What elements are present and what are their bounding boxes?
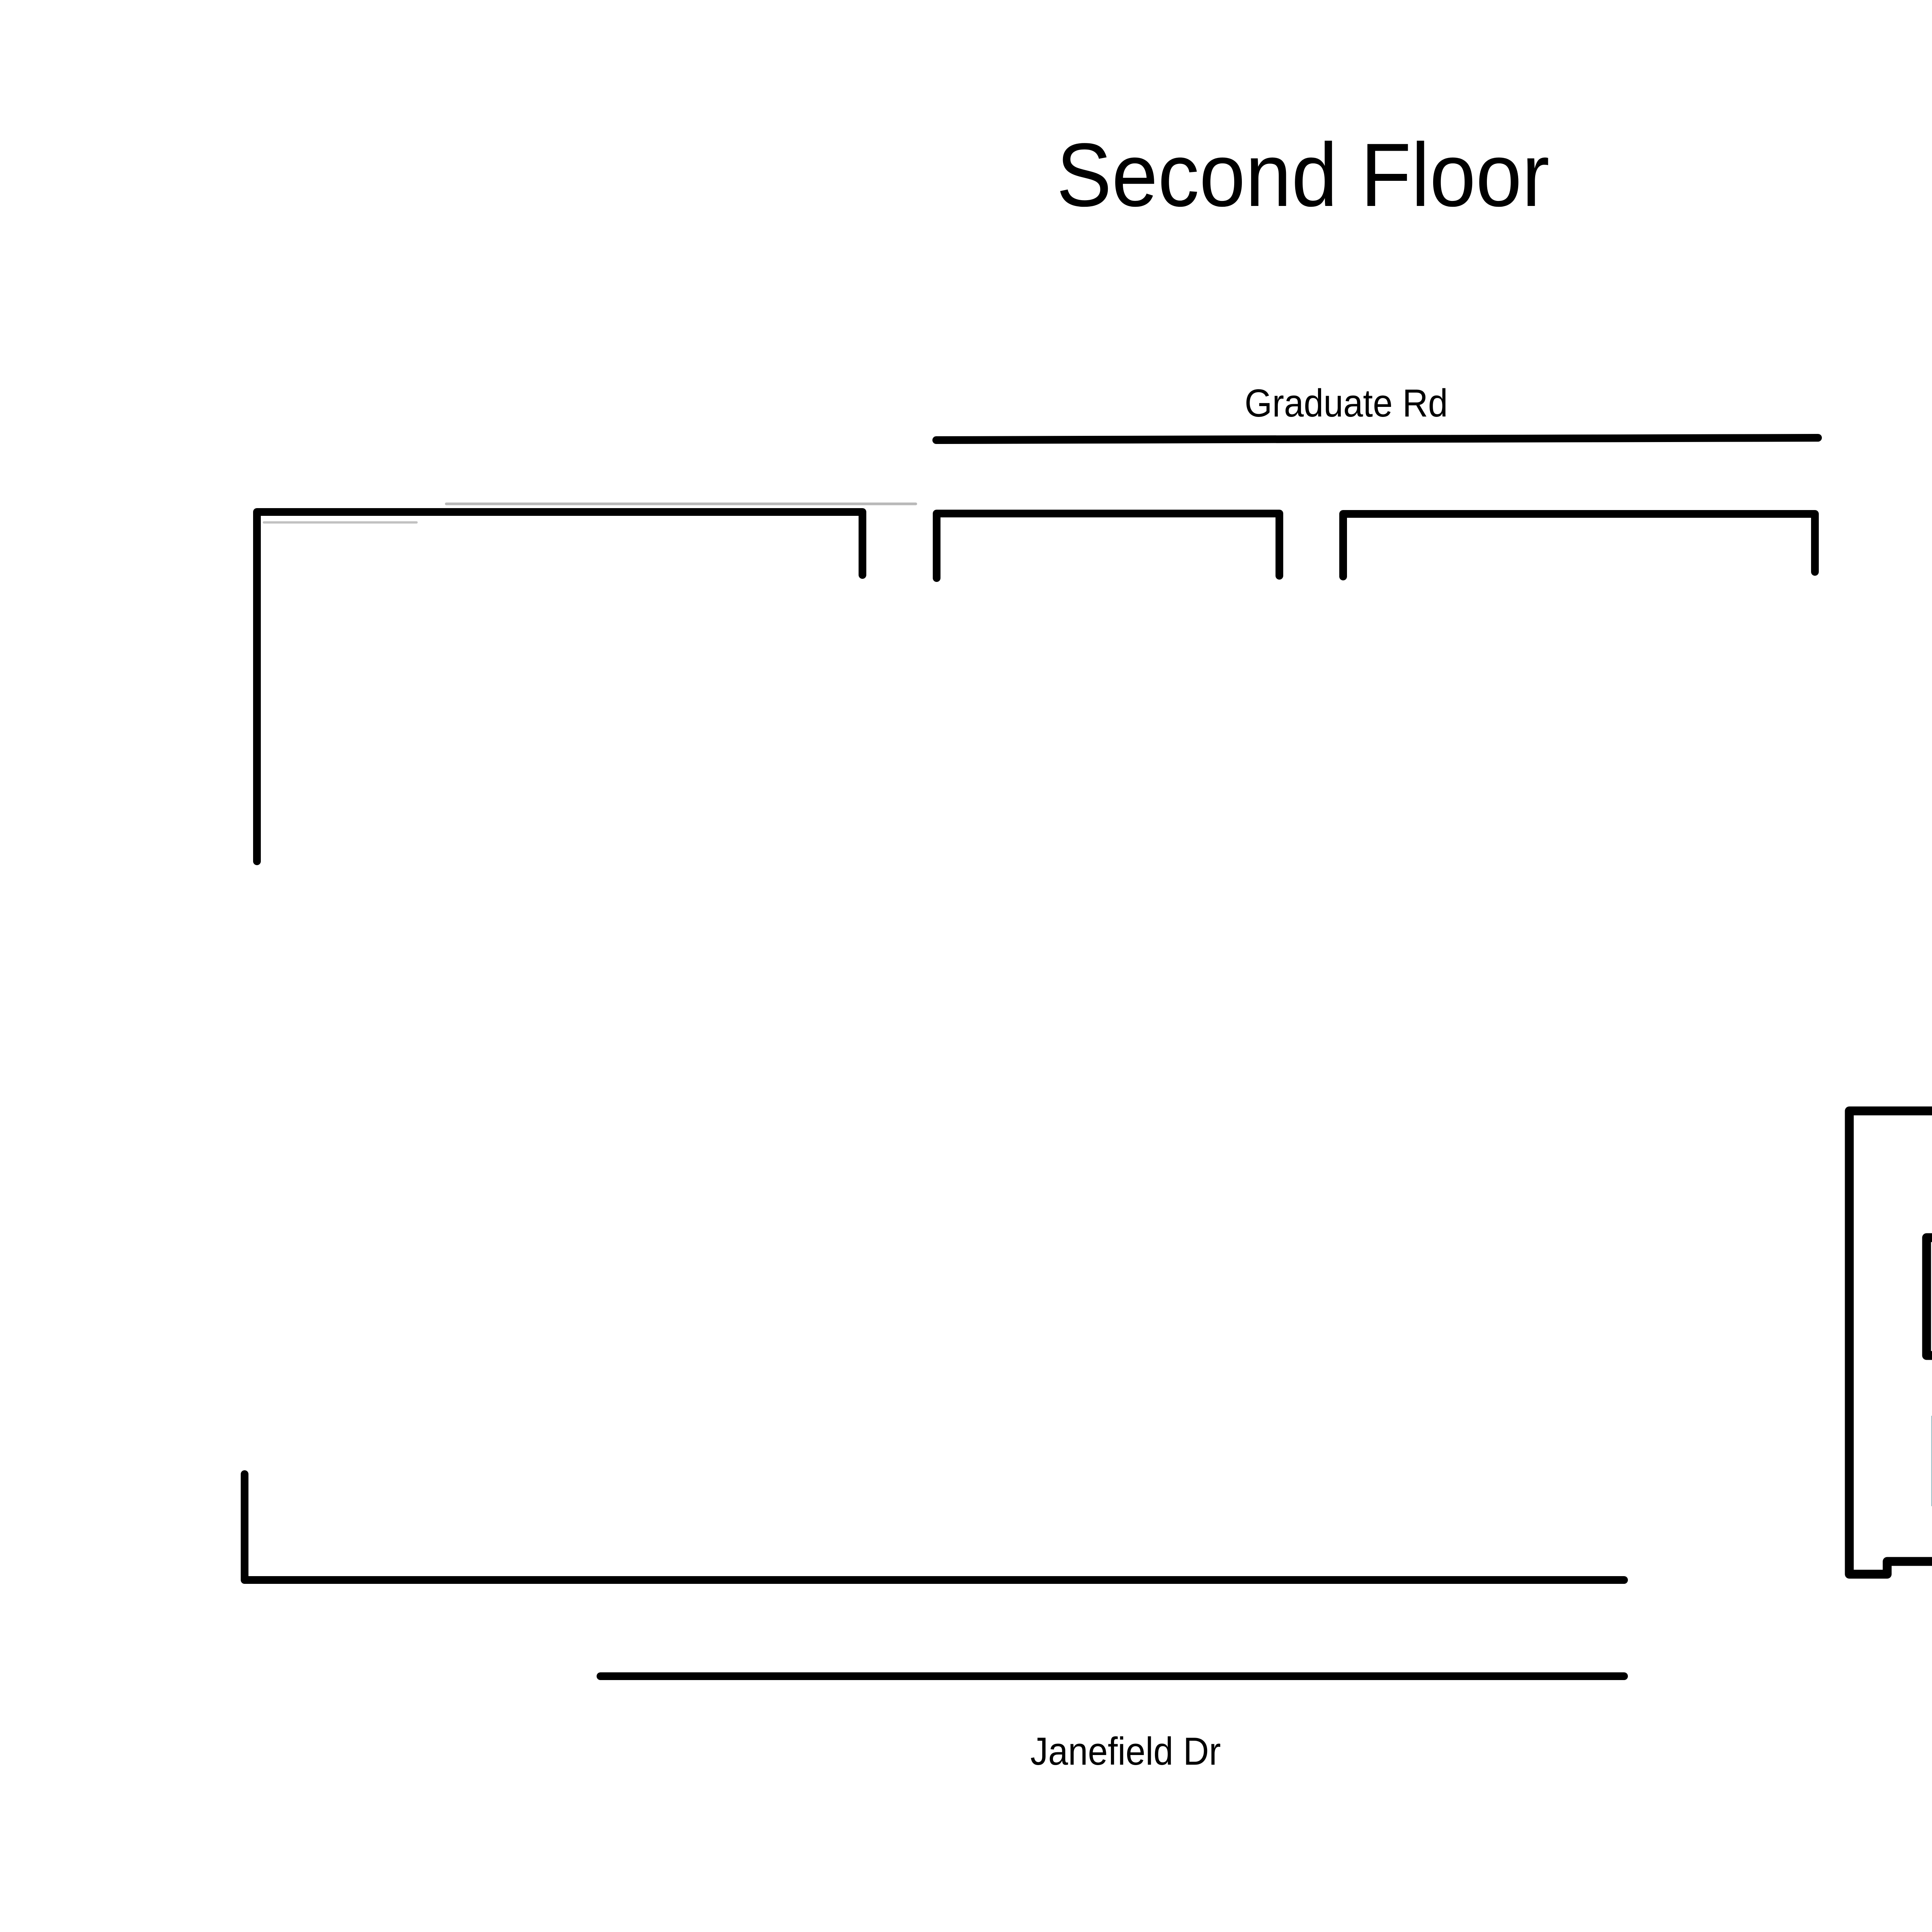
- svg-text:Second Floor: Second Floor: [1056, 125, 1549, 225]
- svg-text:Graduate Rd: Graduate Rd: [1245, 382, 1448, 425]
- svg-text:Janefield Dr: Janefield Dr: [1031, 1730, 1221, 1773]
